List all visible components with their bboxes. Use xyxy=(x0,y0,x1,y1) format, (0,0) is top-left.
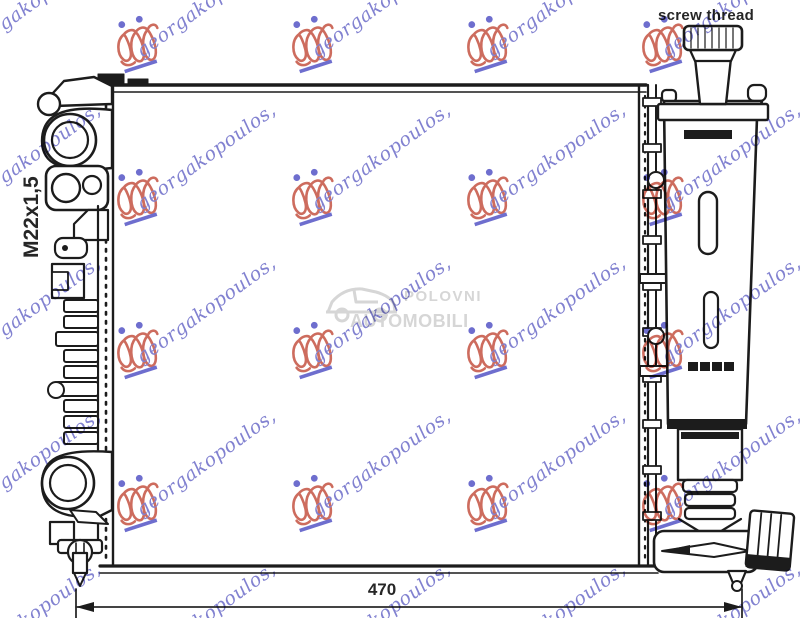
outlet-pipe xyxy=(654,510,794,591)
screw-cap xyxy=(684,26,742,50)
radiator-diagram-page: POLOVNI AUTOMOBILI xyxy=(0,0,800,618)
thread-spec-label: M22x1,5 xyxy=(20,176,44,258)
width-dimension-label: 470 xyxy=(352,580,412,600)
arrow-left-icon xyxy=(76,602,94,612)
expansion-tank xyxy=(658,26,768,519)
screw-thread-label: screw thread xyxy=(658,7,754,24)
radiator-line-drawing xyxy=(0,0,800,618)
radiator-core xyxy=(98,74,658,573)
left-tank xyxy=(38,77,112,586)
arrow-right-icon xyxy=(724,602,742,612)
